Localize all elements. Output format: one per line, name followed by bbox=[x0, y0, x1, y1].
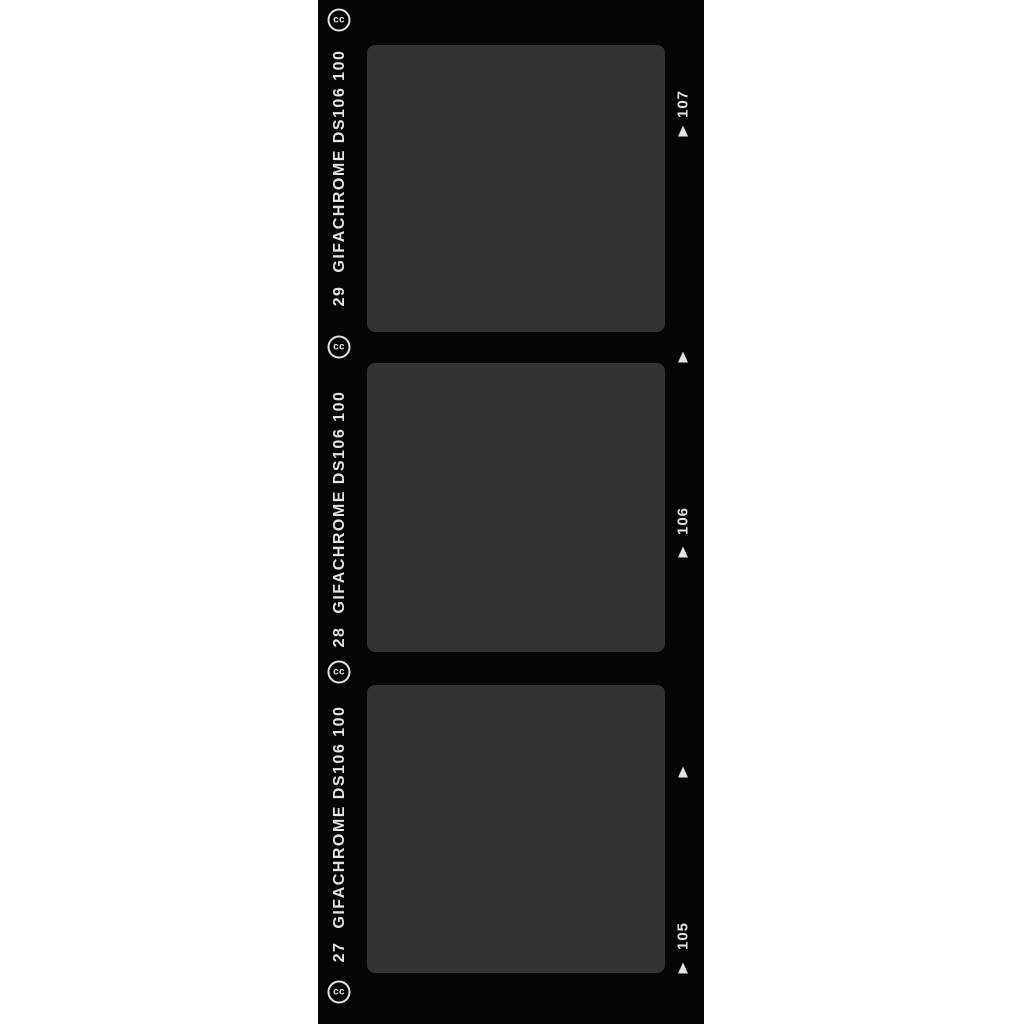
film-frame-28 bbox=[367, 363, 665, 652]
cc-license-label: cc bbox=[333, 987, 345, 997]
cc-license-icon: cc bbox=[328, 9, 351, 32]
film-brand-label: GIFACHROME DS106 100 bbox=[332, 391, 348, 614]
cc-license-label: cc bbox=[333, 667, 345, 677]
cc-license-icon: cc bbox=[328, 661, 351, 684]
frame-number-label: 29 bbox=[332, 286, 348, 307]
film-frame-27 bbox=[367, 685, 665, 973]
film-strip: 29 GIFACHROME DS106 100 28 GIFACHROME DS… bbox=[318, 0, 704, 1024]
film-brand-label: GIFACHROME DS106 100 bbox=[332, 50, 348, 273]
up-arrow-icon bbox=[678, 352, 688, 363]
page-background: 29 GIFACHROME DS106 100 28 GIFACHROME DS… bbox=[0, 0, 1024, 1024]
film-frame-29 bbox=[367, 45, 665, 332]
cc-license-label: cc bbox=[333, 15, 345, 25]
cc-license-icon: cc bbox=[328, 336, 351, 359]
up-arrow-icon bbox=[678, 963, 688, 974]
cc-license-icon: cc bbox=[328, 981, 351, 1004]
frame-number-label: 27 bbox=[332, 942, 348, 963]
edge-caption-frame-27: 27 GIFACHROME DS106 100 bbox=[332, 706, 348, 963]
frame-number-label: 28 bbox=[332, 627, 348, 648]
film-brand-label: GIFACHROME DS106 100 bbox=[332, 706, 348, 929]
edge-number-label-107: 107 bbox=[676, 90, 691, 118]
cc-license-label: cc bbox=[333, 342, 345, 352]
up-arrow-icon bbox=[678, 547, 688, 558]
edge-number-label-105: 105 bbox=[676, 922, 691, 950]
up-arrow-icon bbox=[678, 767, 688, 778]
edge-number-label-106: 106 bbox=[676, 507, 691, 535]
edge-caption-frame-28: 28 GIFACHROME DS106 100 bbox=[332, 391, 348, 648]
up-arrow-icon bbox=[678, 126, 688, 137]
edge-caption-frame-29: 29 GIFACHROME DS106 100 bbox=[332, 50, 348, 307]
